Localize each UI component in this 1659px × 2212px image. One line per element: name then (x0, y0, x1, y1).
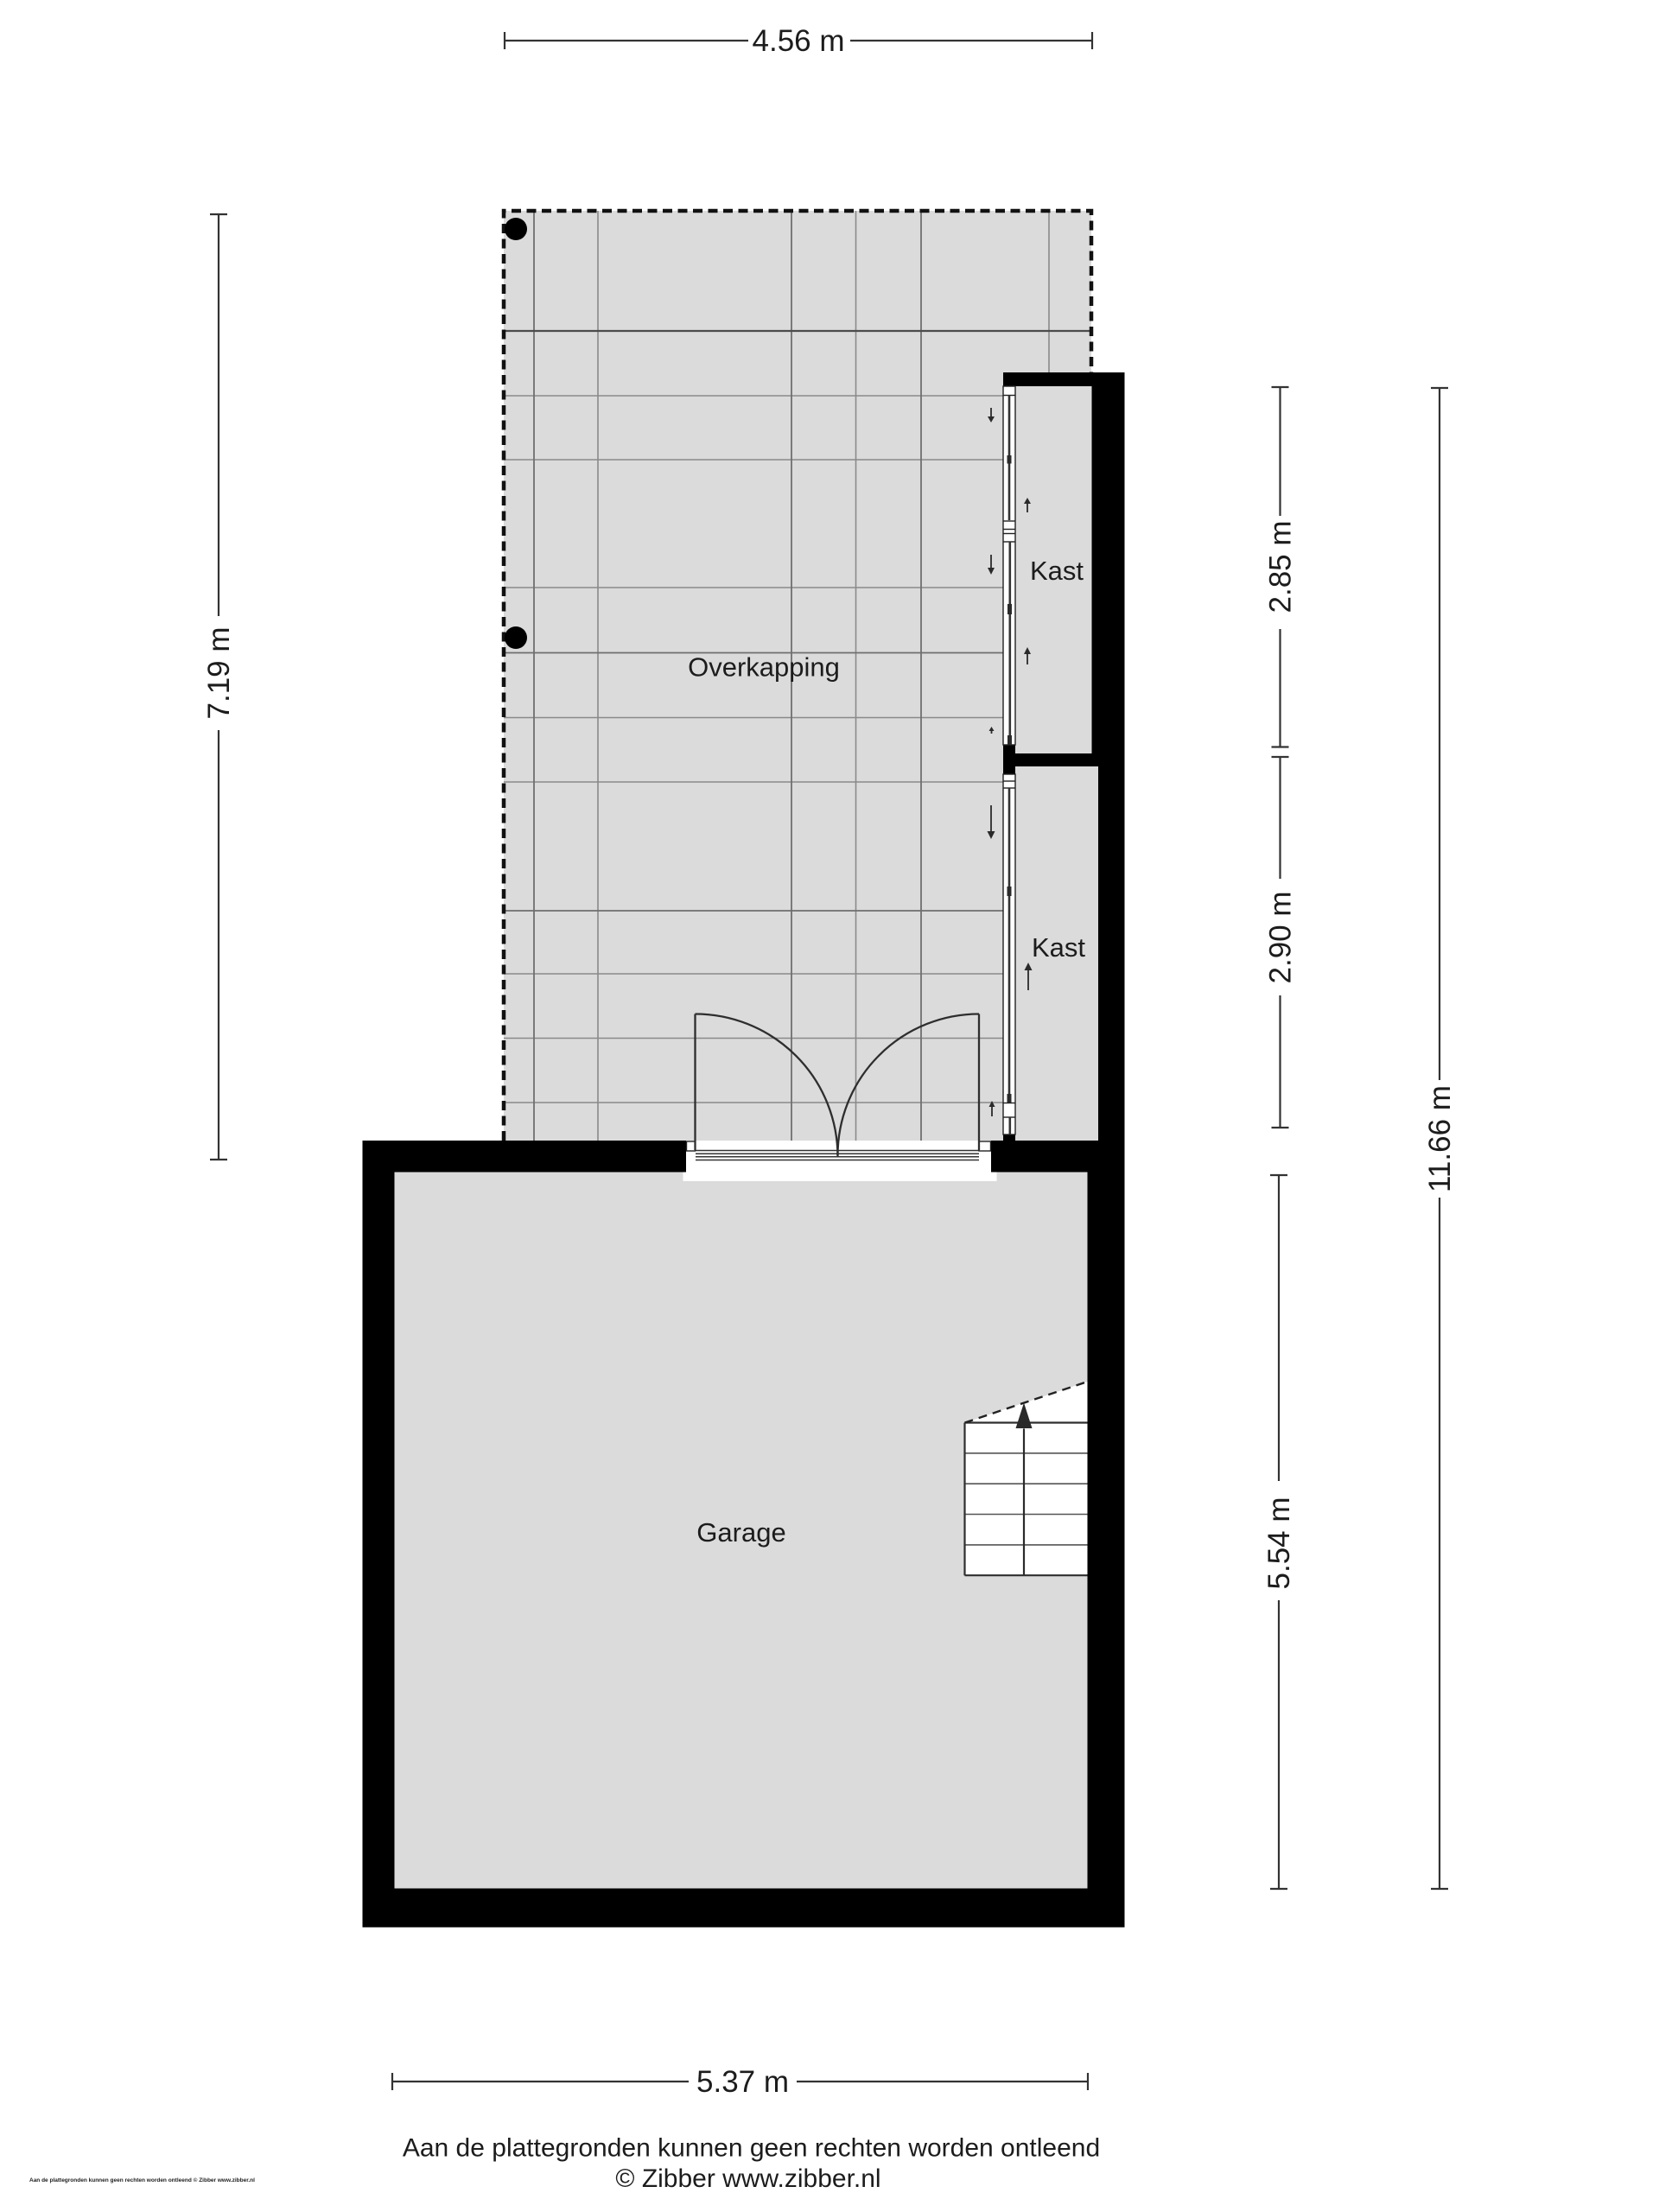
svg-text:4.56 m: 4.56 m (753, 24, 845, 58)
svg-text:Garage: Garage (696, 1517, 785, 1548)
svg-text:2.90 m: 2.90 m (1264, 892, 1298, 984)
svg-text:7.19 m: 7.19 m (202, 627, 236, 720)
svg-text:5.37 m: 5.37 m (696, 2065, 789, 2099)
svg-text:Kast: Kast (1030, 556, 1084, 586)
svg-text:Overkapping: Overkapping (688, 652, 840, 683)
svg-text:Kast: Kast (1032, 932, 1085, 963)
svg-text:2.85 m: 2.85 m (1264, 521, 1298, 613)
svg-text:Aan de plattegronden kunnen ge: Aan de plattegronden kunnen geen rechten… (403, 2134, 1100, 2163)
svg-text:11.66 m: 11.66 m (1423, 1085, 1457, 1192)
svg-text:5.54 m: 5.54 m (1262, 1497, 1296, 1590)
svg-text:© Zibber www.zibber.nl: © Zibber www.zibber.nl (615, 2164, 880, 2193)
svg-text:Aan de plattegronden kunnen ge: Aan de plattegronden kunnen geen rechten… (29, 2177, 255, 2183)
